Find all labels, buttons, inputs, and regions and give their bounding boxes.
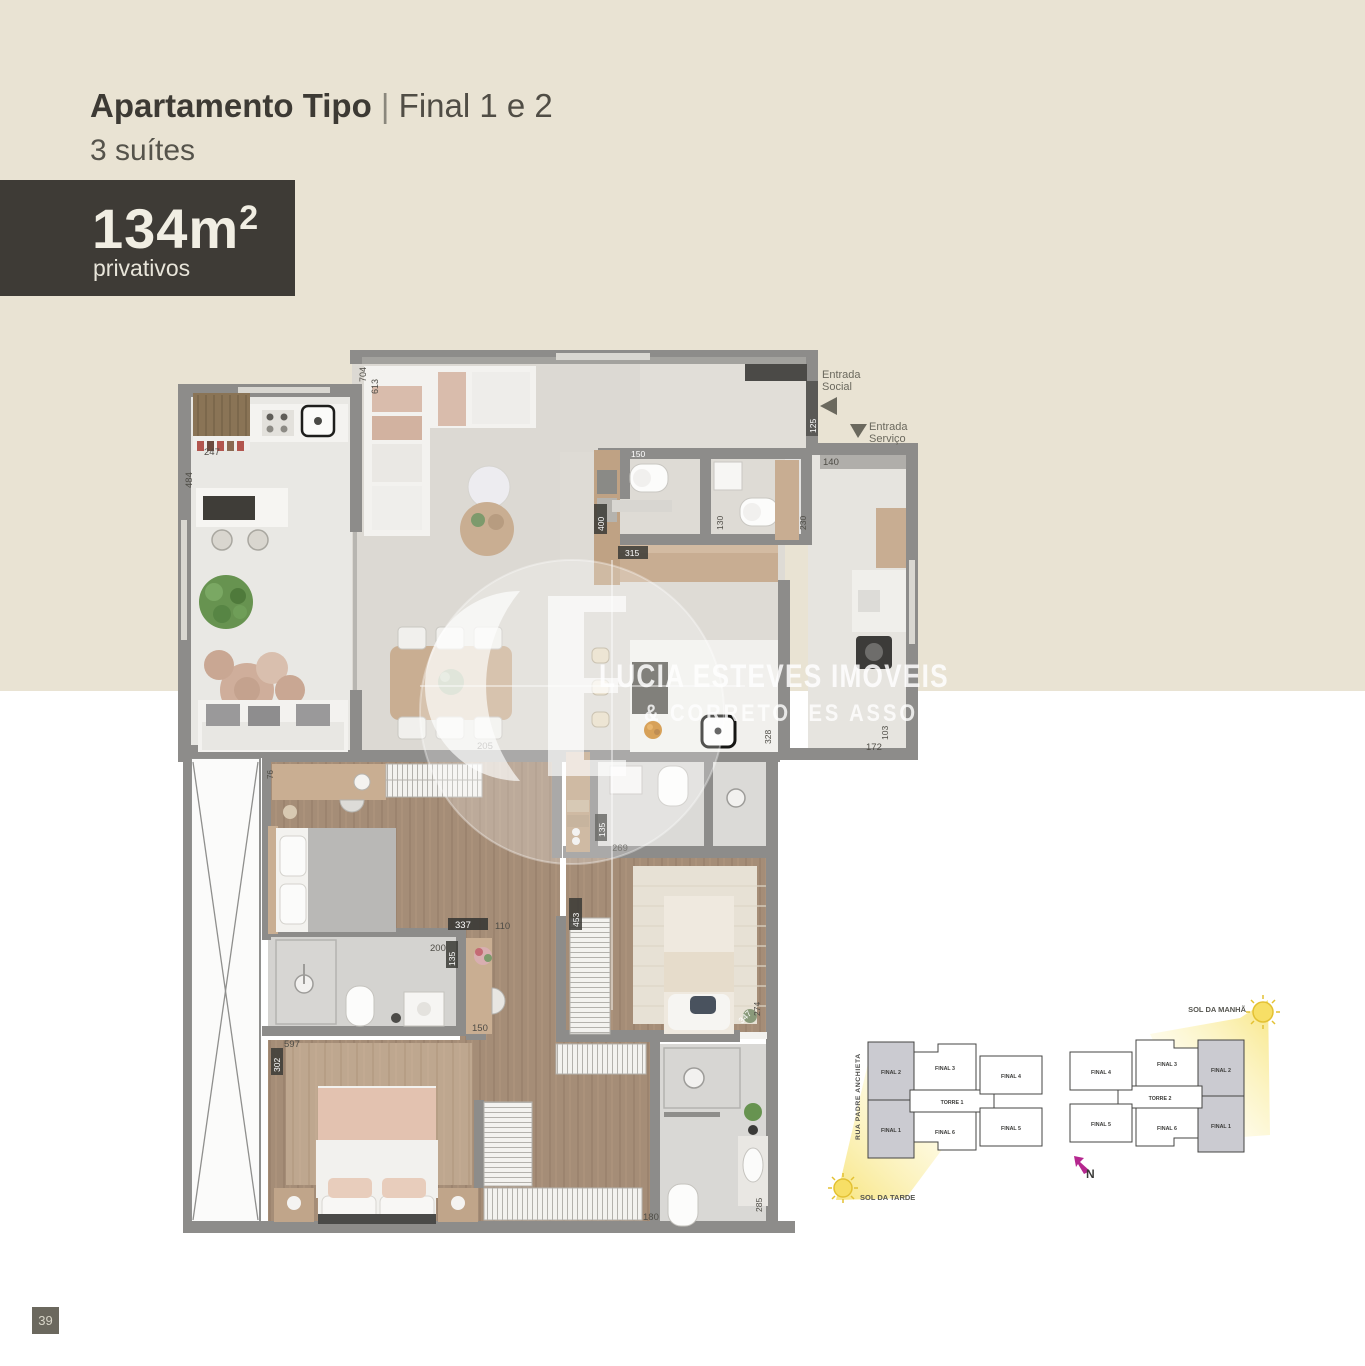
svg-text:FINAL 3: FINAL 3 bbox=[1157, 1062, 1177, 1068]
svg-text:274: 274 bbox=[752, 1002, 762, 1016]
svg-text:Social: Social bbox=[822, 381, 852, 393]
svg-text:SOL DA MANHÃ: SOL DA MANHÃ bbox=[1188, 1005, 1247, 1014]
svg-text:FINAL 6: FINAL 6 bbox=[935, 1130, 955, 1136]
svg-text:453: 453 bbox=[571, 913, 581, 927]
svg-text:FINAL 2: FINAL 2 bbox=[1211, 1068, 1231, 1074]
svg-text:302: 302 bbox=[272, 1058, 282, 1072]
svg-text:Serviço: Serviço bbox=[869, 433, 906, 445]
svg-text:135: 135 bbox=[447, 952, 457, 966]
svg-text:125: 125 bbox=[808, 419, 818, 433]
svg-text:484: 484 bbox=[184, 472, 195, 488]
svg-text:FINAL 6: FINAL 6 bbox=[1157, 1126, 1177, 1132]
svg-text:337: 337 bbox=[455, 920, 471, 931]
svg-text:172: 172 bbox=[866, 742, 882, 753]
svg-text:315: 315 bbox=[625, 548, 639, 558]
svg-text:704: 704 bbox=[358, 367, 368, 382]
svg-text:FINAL 1: FINAL 1 bbox=[881, 1128, 901, 1134]
svg-text:180: 180 bbox=[643, 1212, 659, 1223]
svg-text:150: 150 bbox=[631, 449, 645, 459]
svg-text:N: N bbox=[1086, 1167, 1095, 1181]
svg-text:130: 130 bbox=[715, 516, 725, 530]
svg-text:FINAL 4: FINAL 4 bbox=[1091, 1070, 1111, 1076]
svg-text:597: 597 bbox=[284, 1039, 300, 1050]
svg-text:76: 76 bbox=[266, 770, 275, 779]
svg-text:Entrada: Entrada bbox=[822, 369, 861, 381]
svg-text:& CORRETORES ASSOC.: & CORRETORES ASSOC. bbox=[644, 699, 944, 726]
svg-text:285: 285 bbox=[754, 1198, 764, 1212]
svg-text:FINAL 4: FINAL 4 bbox=[1001, 1074, 1021, 1080]
svg-text:FINAL 1: FINAL 1 bbox=[1211, 1124, 1231, 1130]
svg-text:FINAL 5: FINAL 5 bbox=[1091, 1122, 1111, 1128]
svg-text:TORRE 1: TORRE 1 bbox=[941, 1100, 964, 1106]
svg-text:SOL DA TARDE: SOL DA TARDE bbox=[860, 1193, 915, 1202]
svg-text:RUA PADRE ANCHIETA: RUA PADRE ANCHIETA bbox=[855, 1053, 862, 1140]
svg-text:LUCIA ESTEVES IMOVEIS: LUCIA ESTEVES IMOVEIS bbox=[599, 660, 949, 695]
svg-text:230: 230 bbox=[798, 516, 808, 530]
svg-text:FINAL 3: FINAL 3 bbox=[935, 1066, 955, 1072]
svg-text:140: 140 bbox=[823, 457, 839, 468]
svg-text:247: 247 bbox=[204, 447, 220, 458]
svg-text:110: 110 bbox=[495, 921, 510, 932]
svg-text:328: 328 bbox=[763, 730, 773, 744]
svg-text:150: 150 bbox=[472, 1023, 488, 1034]
svg-text:613: 613 bbox=[370, 379, 380, 394]
svg-text:400: 400 bbox=[596, 517, 606, 531]
svg-text:FINAL 2: FINAL 2 bbox=[881, 1070, 901, 1076]
svg-text:103: 103 bbox=[880, 726, 890, 740]
svg-text:FINAL 5: FINAL 5 bbox=[1001, 1126, 1021, 1132]
svg-text:Entrada: Entrada bbox=[869, 421, 908, 433]
svg-text:200: 200 bbox=[430, 943, 446, 954]
svg-text:TORRE 2: TORRE 2 bbox=[1149, 1096, 1172, 1102]
